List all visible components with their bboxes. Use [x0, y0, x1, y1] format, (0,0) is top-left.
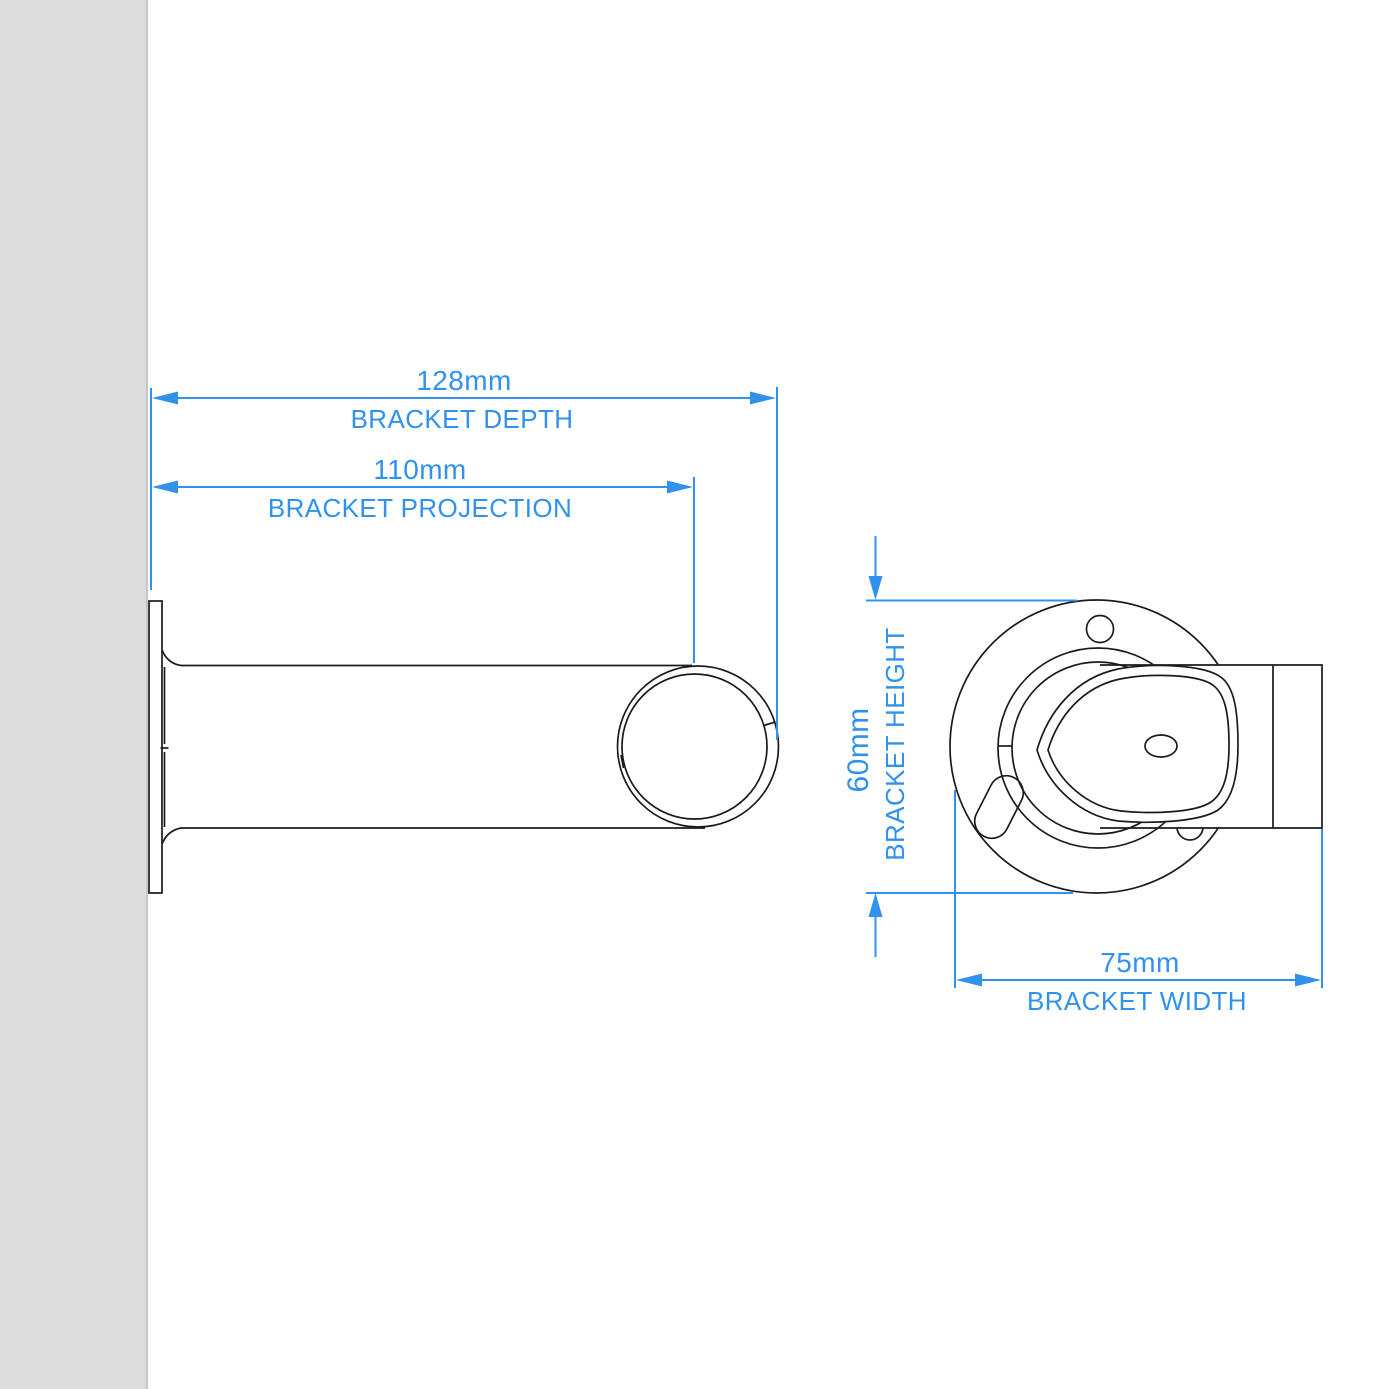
- width-arrow-right: [1295, 974, 1321, 987]
- height-value-label: 60mm: [844, 708, 874, 793]
- projection-arrow-right: [667, 481, 693, 494]
- projection-arrow-left: [152, 481, 178, 494]
- depth-arrow-right: [750, 392, 776, 405]
- depth-arrow-left: [152, 392, 178, 405]
- depth-caption-label: BRACKET DEPTH: [351, 406, 574, 432]
- projection-value-label: 110mm: [373, 456, 466, 484]
- dimension-depth: [151, 387, 777, 740]
- technical-drawing-canvas: 128mm BRACKET DEPTH 110mm BRACKET PROJEC…: [0, 0, 1389, 1389]
- height-caption-label: BRACKET HEIGHT: [882, 627, 908, 860]
- side-view-drawing: [149, 601, 779, 893]
- width-value-label: 75mm: [1100, 949, 1179, 977]
- bracket-line-drawing: [0, 0, 1389, 1389]
- projection-caption-label: BRACKET PROJECTION: [268, 495, 572, 521]
- side-cup-seam-tick: [764, 722, 776, 726]
- side-cup-inner-circle: [622, 674, 767, 819]
- side-arm-top-outline: [162, 650, 692, 666]
- height-arrow-top: [869, 576, 883, 600]
- width-arrow-left: [956, 974, 982, 987]
- side-wall-plate: [149, 601, 162, 893]
- height-arrow-bottom: [869, 893, 883, 917]
- side-arm-bottom-outline: [162, 828, 705, 844]
- side-cup-outer-circle: [618, 666, 779, 827]
- width-caption-label: BRACKET WIDTH: [1027, 988, 1247, 1014]
- front-view-drawing: [950, 600, 1322, 893]
- depth-value-label: 128mm: [416, 367, 511, 395]
